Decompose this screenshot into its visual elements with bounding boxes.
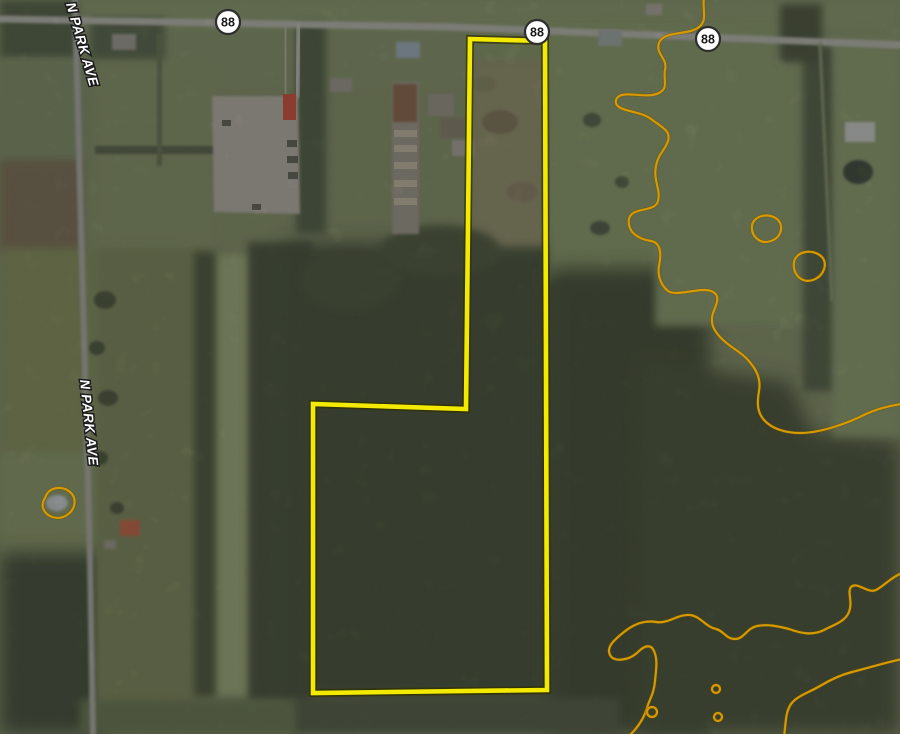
- route-shield-label: 88: [701, 33, 715, 47]
- satellite-map-view[interactable]: 888888N PARK AVEN PARK AVE: [0, 0, 900, 734]
- map-canvas: 888888N PARK AVEN PARK AVE: [0, 0, 900, 734]
- route-88-shield: 88: [216, 10, 240, 34]
- route-shield-label: 88: [530, 26, 544, 40]
- route-88-shield: 88: [696, 27, 720, 51]
- route-shield-label: 88: [221, 16, 235, 30]
- route-88-shield: 88: [525, 20, 549, 44]
